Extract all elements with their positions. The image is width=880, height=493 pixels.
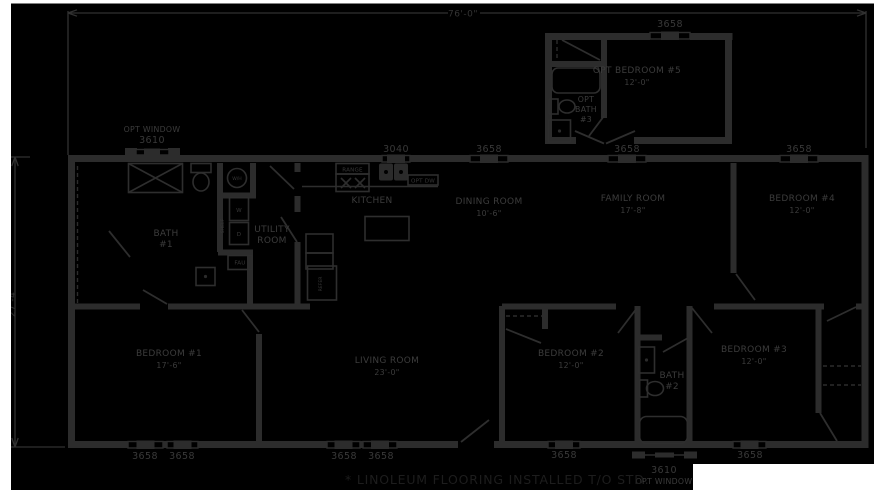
window-annex-symbol bbox=[650, 31, 690, 42]
bath1-shower bbox=[129, 164, 183, 193]
room-label-opt-bath3-line2: BATH bbox=[575, 105, 597, 114]
opt-bedroom5-annex-walls bbox=[545, 33, 733, 144]
fau-label: FAU bbox=[234, 261, 245, 267]
room-label-bedroom1: BEDROOM #1 bbox=[136, 349, 202, 359]
window-3658-bottom3-label: 3658 bbox=[331, 451, 357, 462]
bath2-toilet bbox=[640, 380, 664, 397]
range-label: RANGE bbox=[342, 168, 363, 174]
room-label-bath2-line2: #2 bbox=[665, 382, 679, 392]
kitchen-sink bbox=[379, 164, 408, 181]
window-3658-bedroom5-label: 3658 bbox=[657, 19, 683, 30]
room-size-bedroom2: 12'-0" bbox=[558, 361, 583, 370]
room-label-bath1-line2: #1 bbox=[159, 240, 173, 250]
interior-walls bbox=[68, 36, 865, 444]
scan-edges bbox=[0, 0, 880, 493]
room-label-kitchen: KITCHEN bbox=[351, 196, 392, 206]
opt-window-top-symbol bbox=[125, 148, 180, 156]
window-3040-symbol bbox=[382, 154, 410, 165]
water-heater-label: W/H bbox=[232, 176, 242, 182]
bath3-toilet bbox=[549, 99, 575, 114]
room-label-family: FAMILY ROOM bbox=[601, 194, 666, 204]
room-label-utility-line1: UTILITY bbox=[254, 225, 290, 235]
overall-width-dimension: 76'-0" bbox=[448, 10, 478, 20]
room-label-bedroom2: BEDROOM #2 bbox=[538, 349, 604, 359]
bath2-tub bbox=[640, 417, 688, 444]
window-3658-family-label: 3658 bbox=[614, 144, 640, 155]
fixtures bbox=[129, 68, 688, 444]
room-size-dining: 10'-6" bbox=[476, 209, 501, 218]
room-label-bedroom4: BEDROOM #4 bbox=[769, 194, 835, 204]
room-label-bedroom3: BEDROOM #3 bbox=[721, 345, 787, 355]
bath1-vanity bbox=[196, 268, 215, 286]
floor-plan-page: 76'-0" 27'-4" OPT WINDOW 3610 3040 3658 … bbox=[0, 0, 880, 493]
blank-corner-block bbox=[693, 464, 880, 493]
room-label-opt-bedroom5: OPT BEDROOM #5 bbox=[593, 66, 681, 76]
window-3040-label: 3040 bbox=[383, 144, 409, 155]
kitchen-island bbox=[365, 217, 409, 241]
dryer-label: D bbox=[237, 232, 242, 238]
window-3658-dining-label: 3658 bbox=[476, 144, 502, 155]
opt-window-bottom-size: 3610 bbox=[651, 465, 677, 476]
window-3658-bottom2-label: 3658 bbox=[169, 451, 195, 462]
room-size-bedroom4: 12'-0" bbox=[789, 206, 814, 215]
bath1-toilet bbox=[191, 164, 211, 192]
bath2-vanity bbox=[639, 347, 655, 373]
dimension-lines bbox=[8, 10, 866, 447]
window-3658-bottom4-label: 3658 bbox=[368, 451, 394, 462]
room-size-bedroom1: 17'-6" bbox=[156, 361, 181, 370]
dashed-lines bbox=[78, 40, 862, 385]
opt-window-top-label: OPT WINDOW bbox=[124, 125, 181, 134]
room-size-family: 17'-8" bbox=[620, 206, 645, 215]
opt-window-top-size: 3610 bbox=[139, 135, 165, 146]
room-label-bath1-line1: BATH bbox=[153, 229, 178, 239]
room-label-living: LIVING ROOM bbox=[355, 356, 420, 366]
window-3658-bedroom3-label: 3658 bbox=[737, 450, 763, 461]
washer-label: W bbox=[236, 208, 242, 214]
opt-window-bottom-symbol bbox=[632, 452, 697, 459]
opt-dw-label: OPT DW bbox=[411, 179, 435, 185]
linoleum-note: * LINOLEUM FLOORING INSTALLED T/O STD. bbox=[345, 472, 649, 487]
room-label-utility-line2: ROOM bbox=[257, 236, 286, 246]
shelf-label: SHELF bbox=[220, 218, 226, 233]
room-size-living: 23'-0" bbox=[374, 368, 399, 377]
window-3658-bottom1-label: 3658 bbox=[132, 451, 158, 462]
window-3658-bedroom4-label: 3658 bbox=[786, 144, 812, 155]
room-label-opt-bath3-line3: #3 bbox=[580, 115, 592, 124]
room-size-bedroom3: 12'-0" bbox=[741, 357, 766, 366]
floor-plan-image: 76'-0" 27'-4" OPT WINDOW 3610 3040 3658 … bbox=[0, 0, 880, 493]
room-label-dining: DINING ROOM bbox=[455, 197, 522, 207]
room-label-opt-bath3-line1: OPT bbox=[578, 95, 595, 104]
window-3658-bedroom2-label: 3658 bbox=[551, 450, 577, 461]
room-label-bath2-line1: BATH bbox=[659, 371, 684, 381]
refrigerator-label: REFER bbox=[318, 276, 324, 292]
room-size-opt-bedroom5: 12'-0" bbox=[624, 78, 649, 87]
kitchen-cabinet-upper bbox=[306, 234, 333, 253]
